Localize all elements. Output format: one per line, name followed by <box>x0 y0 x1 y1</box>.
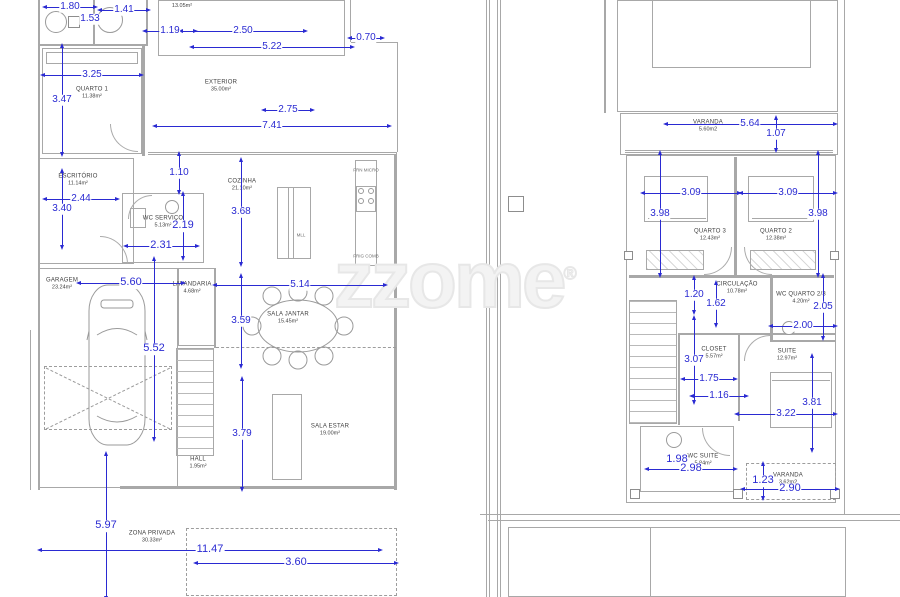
room-name: CLOSET <box>701 346 726 353</box>
room-name: ZONA PRIVADA <box>129 530 175 537</box>
car-icon <box>87 285 147 445</box>
room-area: 19.00m² <box>311 430 349 436</box>
room-label-quarto-2: QUARTO 212.38m² <box>760 228 792 241</box>
dimension-1-07: 1.07 <box>765 129 786 140</box>
appliance-label-frn-micro: FRN MICRO <box>353 169 379 174</box>
room-label-sala-estar: SALA ESTAR19.00m² <box>311 423 349 436</box>
room-label-suite: SUITE12.97m² <box>777 348 797 361</box>
room-label-cozinha: COZINHA21.10m² <box>228 178 256 191</box>
dimension-1-53: 1.53 <box>79 14 100 25</box>
dimension-5-64: 5.64 <box>739 119 760 130</box>
room-name: SUITE <box>777 348 797 355</box>
dimension-2-00: 2.00 <box>792 321 813 332</box>
dimension-3-98: 3.98 <box>807 209 828 220</box>
room-area: 5.60m2 <box>693 126 723 132</box>
room-area: 10.78m² <box>716 288 757 294</box>
room-label-circula-o: CIRCULAÇÃO10.78m² <box>716 281 757 294</box>
room-area: 12.43m² <box>694 235 726 241</box>
room-name: ESCRITÓRIO <box>58 173 97 180</box>
room-area: 11.14m² <box>58 180 97 186</box>
appliance-label-frig-comb: FRIG COMB <box>353 255 379 260</box>
room-area: 1.95m² <box>189 463 206 469</box>
room-name: EXTERIOR <box>205 79 237 86</box>
room-label-quarto-1: QUARTO 111.38m² <box>76 86 108 99</box>
dimension-1-41: 1.41 <box>113 5 134 16</box>
floor-plan-canvas: zzome® 1.801.531.411.192.505.2 <box>0 0 900 597</box>
dimension-3-59: 3.59 <box>230 316 251 327</box>
dimension-2-98: 2.98 <box>679 463 702 475</box>
room-area: 21.10m² <box>228 185 256 191</box>
room-label-garagem: GARAGEM23.24m² <box>46 277 78 290</box>
room-name: QUARTO 3 <box>694 228 726 235</box>
room-name: GARAGEM <box>46 277 78 284</box>
room-name: COZINHA <box>228 178 256 185</box>
dimension-3-40: 3.40 <box>51 204 72 215</box>
dimension-1-23: 1.23 <box>751 475 774 487</box>
room-area: 11.38m² <box>76 93 108 99</box>
dimension-1-62: 1.62 <box>705 299 726 310</box>
room-name: SALA ESTAR <box>311 423 349 430</box>
dimension-1-80: 1.80 <box>59 2 80 13</box>
room-area: 4.68m² <box>172 288 211 294</box>
room-label-varanda: VARANDA5.60m2 <box>693 119 723 132</box>
dimension-2-90: 2.90 <box>778 483 801 495</box>
room-area: 5.57m² <box>701 353 726 359</box>
dimension-3-60: 3.60 <box>284 557 307 569</box>
room-name: VARANDA <box>773 472 803 479</box>
dimension-3-07: 3.07 <box>683 355 704 366</box>
room-name: CIRCULAÇÃO <box>716 281 757 288</box>
dimension-1-10: 1.10 <box>168 168 189 179</box>
room-area: 12.38m² <box>760 235 792 241</box>
dimension-2-31: 2.31 <box>149 240 172 252</box>
room-name: HALL <box>189 456 206 463</box>
dimension-2-19: 2.19 <box>171 220 194 232</box>
dimension-11-47: 11.47 <box>196 544 225 556</box>
room-name: QUARTO 1 <box>76 86 108 93</box>
appliance-label-mll: MLL <box>297 234 306 239</box>
room-label-sala-jantar: SALA JANTAR15.45m² <box>267 311 309 324</box>
dimension-5-60: 5.60 <box>119 277 142 289</box>
room-name: WC QUARTO 2/3 <box>776 291 826 298</box>
dimension-1-20: 1.20 <box>683 290 704 301</box>
room-label-hall: HALL1.95m² <box>189 456 206 469</box>
room-name: WC SUITE <box>688 453 719 460</box>
room-label-zona-privada: ZONA PRIVADA30.33m² <box>129 530 175 543</box>
dimension-3-47: 3.47 <box>51 95 72 106</box>
dimension-2-05: 2.05 <box>812 302 833 313</box>
dimension-3-09: 3.09 <box>777 188 798 199</box>
dimension-3-81: 3.81 <box>801 398 822 409</box>
room-name: VARANDA <box>693 119 723 126</box>
floor-plan-graphics <box>0 0 900 597</box>
room-label-exterior: EXTERIOR35.00m² <box>205 79 237 92</box>
room-area: 13.05m² <box>172 3 192 9</box>
dimension-1-75: 1.75 <box>698 374 719 385</box>
room-area: 35.00m² <box>205 86 237 92</box>
dimension-3-22: 3.22 <box>775 409 796 420</box>
dimension-2-44: 2.44 <box>70 194 91 205</box>
room-label-quarto-3: QUARTO 312.43m² <box>694 228 726 241</box>
dimension-5-52: 5.52 <box>142 343 165 355</box>
dining-table-icon <box>243 283 353 369</box>
room-area: 23.24m² <box>46 284 78 290</box>
dimension-5-14: 5.14 <box>289 280 310 291</box>
room-label-13-05m: 13.05m² <box>172 3 192 9</box>
room-name: SALA JANTAR <box>267 311 309 318</box>
room-area: 30.33m² <box>129 537 175 543</box>
dimension-3-79: 3.79 <box>231 429 252 440</box>
room-area: 12.97m² <box>777 355 797 361</box>
dimension-7-41: 7.41 <box>261 121 282 132</box>
dimension-5-22: 5.22 <box>261 42 282 53</box>
dimension-3-98: 3.98 <box>649 209 670 220</box>
dimension-5-97: 5.97 <box>94 520 117 532</box>
room-area: 15.45m² <box>267 318 309 324</box>
dimension-1-19: 1.19 <box>159 26 180 37</box>
dimension-3-25: 3.25 <box>81 70 102 81</box>
dimension-3-68: 3.68 <box>230 207 251 218</box>
dimension-2-75: 2.75 <box>277 105 298 116</box>
dimension-0-70: 0.70 <box>355 33 376 44</box>
dimension-3-09: 3.09 <box>680 188 701 199</box>
room-label-escrit-rio: ESCRITÓRIO11.14m² <box>58 173 97 186</box>
dimension-1-16: 1.16 <box>708 391 729 402</box>
room-label-closet: CLOSET5.57m² <box>701 346 726 359</box>
dimension-2-50: 2.50 <box>232 26 253 37</box>
room-name: QUARTO 2 <box>760 228 792 235</box>
